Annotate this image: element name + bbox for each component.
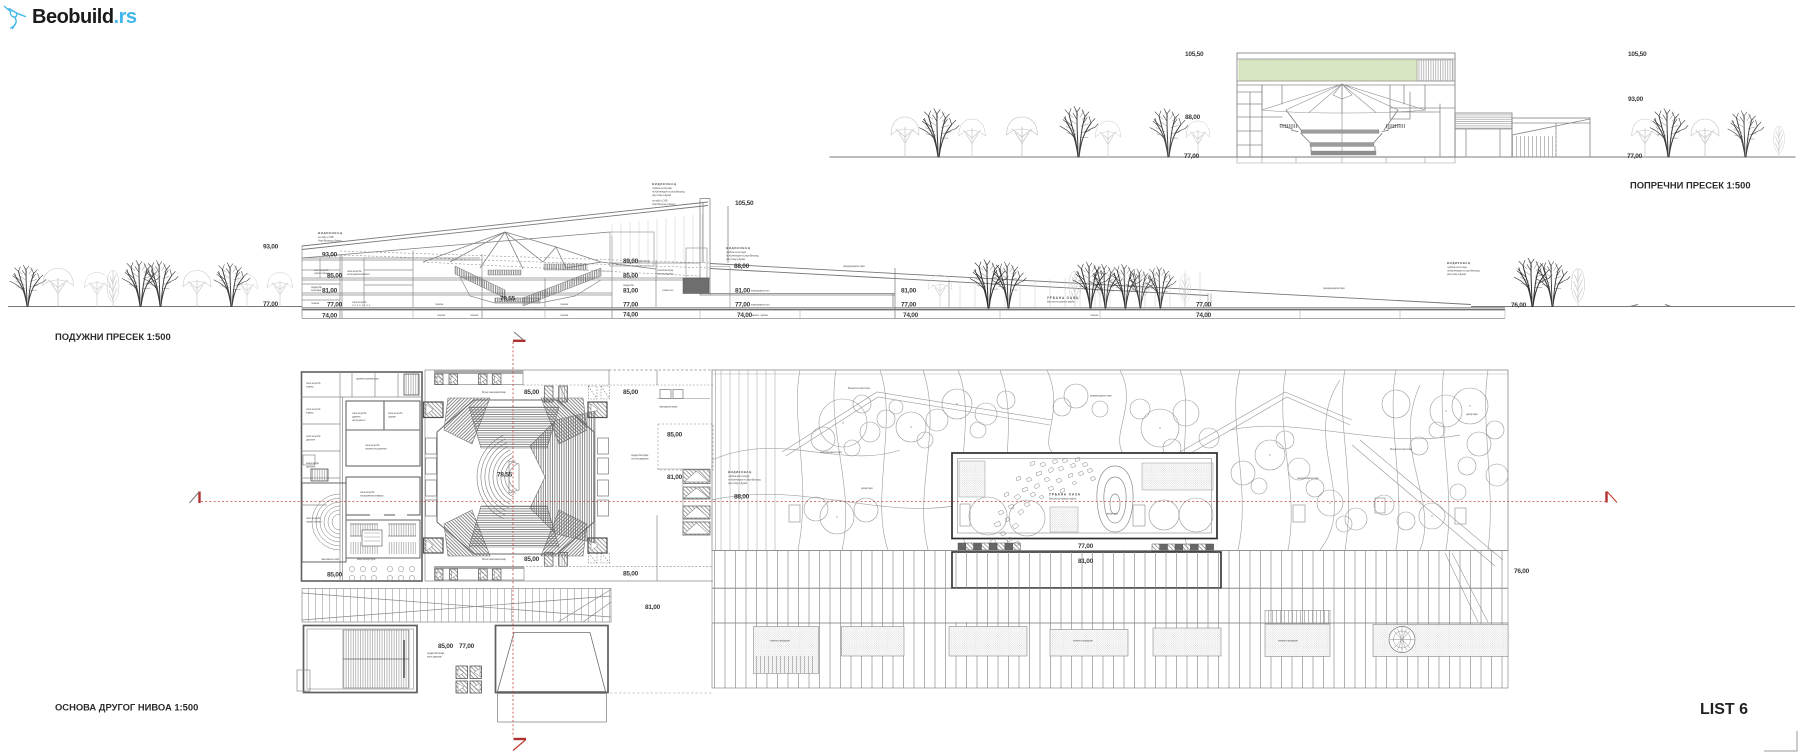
svg-text:зелене платформе: зелене платформе [1278,639,1298,643]
svg-text:85,00: 85,00 [524,389,540,396]
svg-text:78,55: 78,55 [497,472,513,479]
svg-text:административни део: административни део [356,378,379,381]
svg-text:велика дворана: велика дворана [657,273,674,276]
svg-text:УРБАНА ОАЗА: УРБАНА ОАЗА [1047,296,1079,300]
svg-text:музичара: музичара [311,289,322,292]
svg-text:сала за пробе: сала за пробе [365,443,380,447]
svg-text:сала за пробе: сала за пробе [306,381,321,385]
svg-text:ВИДИКОВАЦ: ВИДИКОВАЦ [652,182,677,186]
svg-text:комерцијални хол: комерцијални хол [751,289,770,293]
svg-text:Beobuild.rs: Beobuild.rs [32,6,137,28]
svg-text:оркестар: оркестар [352,304,371,307]
svg-text:Нови Београд и Земун: Нови Београд и Земун [652,202,676,206]
svg-text:77,00: 77,00 [623,302,639,309]
svg-text:77,00: 77,00 [1078,543,1094,550]
svg-text:источна дворана: источна дворана [631,458,649,461]
svg-text:93,00: 93,00 [322,252,338,259]
svg-text:резиденцијални парк: резиденцијални парк [1090,394,1113,398]
svg-text:74,00: 74,00 [903,312,919,319]
svg-text:81,00: 81,00 [623,288,639,295]
svg-text:кафе фискултура: кафе фискултура [357,557,376,561]
svg-text:Башта ресторана и кафеа: Башта ресторана и кафеа [1049,497,1077,501]
svg-text:Бициклистичка стаза: Бициклистичка стаза [848,386,870,390]
svg-text:резиденцијални парк: резиденцијални парк [1323,286,1346,290]
svg-text:канцеларија: канцеларија [306,461,319,465]
svg-text:гудачки: гудачки [388,416,396,419]
svg-text:81,00: 81,00 [645,604,661,611]
svg-text:на Калемегдан и стари Београд: на Калемегдан и стари Београд [652,190,685,194]
svg-text:УРБАНА ОАЗА: УРБАНА ОАЗА [1049,493,1081,497]
svg-text:техника: техника [437,314,446,317]
svg-text:85,00: 85,00 [524,556,540,563]
svg-text:клавир: клавир [306,412,314,415]
svg-text:гардеробе: гардеробе [623,283,634,287]
svg-text:диригент: диригент [306,439,316,442]
svg-text:ПОПРЕЧНИ ПРЕСЕК 1:500: ПОПРЕЧНИ ПРЕСЕК 1:500 [1630,180,1751,191]
svg-text:на тврђ. и СИВ: на тврђ. и СИВ [652,199,668,203]
svg-text:74,00: 74,00 [623,312,639,319]
svg-text:на Калемегдан и стари Београд: на Калемегдан и стари Београд [728,478,761,482]
svg-text:сала за пробе: сала за пробе [352,411,367,415]
svg-text:дечији парк: дечији парк [1466,412,1479,416]
svg-text:85,00: 85,00 [667,432,683,439]
svg-text:Бочне панорама фоаје: Бочне панорама фоаје [482,390,506,394]
svg-text:трибине за погледе: трибине за погледе [726,250,747,254]
svg-text:Нови Београд и Земун: Нови Београд и Земун [318,239,342,243]
svg-text:ОСНОВА ДРУГОГ НИВОА 1:500: ОСНОВА ДРУГОГ НИВОА 1:500 [55,702,198,713]
svg-text:76,00: 76,00 [1514,568,1530,575]
svg-text:77,00: 77,00 [735,302,751,309]
svg-text:трибине (за погледе): трибине (за погледе) [728,474,750,478]
svg-text:панорамски кафе: панорамски кафе [659,405,678,409]
svg-text:реку Саву и Дунав: реку Саву и Дунав [726,257,746,261]
svg-text:74,00: 74,00 [1196,312,1212,319]
svg-text:85,00: 85,00 [438,643,454,650]
svg-text:Бициклистичка стаза: Бициклистичка стаза [1390,447,1412,451]
svg-text:77,00: 77,00 [459,643,475,650]
svg-text:93,00: 93,00 [1628,96,1644,103]
svg-text:81,00: 81,00 [901,288,917,295]
svg-text:81,00: 81,00 [667,474,683,481]
svg-text:панорамски лифт: панорамски лифт [321,557,340,561]
svg-text:на тврђ. и СИВ: на тврђ. и СИВ [318,235,334,239]
svg-text:техника: техника [435,303,444,306]
svg-text:гардероба фоаје: гардероба фоаје [427,651,445,655]
svg-text:сала за пробе: сала за пробе [306,407,321,411]
svg-text:техника: техника [470,314,479,317]
svg-text:инструменти: инструменти [352,419,366,422]
svg-text:74,00: 74,00 [322,313,338,320]
svg-text:зелене платформе: зелене платформе [770,639,790,643]
svg-text:88,00: 88,00 [734,263,750,270]
svg-text:хорско певање: хорско певање [314,272,330,275]
svg-text:Башта ресторана и кафеа: Башта ресторана и кафеа [1047,300,1075,304]
svg-text:комерцијални хол: комерцијални хол [751,303,770,307]
svg-text:ВИДИКОВАЦ: ВИДИКОВАЦ [728,470,752,474]
svg-text:81,00: 81,00 [1078,558,1094,565]
svg-text:трибине за скупове: трибине за скупове [652,186,672,190]
svg-text:инструмената клавира: инструмената клавира [360,495,384,498]
svg-text:ВИДИКОВАЦ: ВИДИКОВАЦ [318,231,343,235]
svg-text:77,00: 77,00 [263,301,279,308]
svg-text:гардероба фоаје: гардероба фоаје [631,453,649,457]
svg-text:реку Саву и Дунав: реку Саву и Дунав [728,481,748,485]
svg-text:трибине за погледе: трибине за погледе [1447,265,1468,269]
svg-text:улазни хол: улазни хол [662,289,674,292]
svg-text:сала за пробе: сала за пробе [306,434,321,438]
svg-text:резиденцијални парк: резиденцијални парк [1297,476,1320,480]
svg-text:резиденцијални парк: резиденцијални парк [843,264,866,268]
svg-text:78,55: 78,55 [500,296,516,303]
svg-text:85,00: 85,00 [327,572,343,579]
svg-text:зелене платформе: зелене платформе [1073,639,1093,643]
svg-text:дечији парк: дечији парк [1106,512,1119,516]
svg-text:Бочне панорама фоаје: Бочне панорама фоаје [482,557,506,561]
svg-text:диригент: диригент [306,466,316,469]
svg-text:77,00: 77,00 [901,302,917,309]
svg-text:77,00: 77,00 [327,302,343,309]
svg-text:мале дворане: мале дворане [427,656,442,659]
svg-text:дечији парк: дечији парк [861,486,874,490]
svg-text:77,00: 77,00 [1184,153,1200,160]
svg-text:сала за пробе: сала за пробе [306,516,321,520]
svg-text:ВИДИКОВАЦ: ВИДИКОВАЦ [726,246,751,250]
svg-text:хорско певање: хорско певање [306,521,322,524]
svg-text:читалачки атриј: читалачки атриј [657,268,674,272]
svg-text:88,00: 88,00 [734,494,750,501]
svg-text:лимени инструменти: лимени инструменти [365,448,387,451]
svg-text:ВИДИКОВАЦ: ВИДИКОВАЦ [1447,261,1471,265]
svg-text:техника: техника [560,314,569,317]
svg-text:реку Саву и Дунав: реку Саву и Дунав [652,193,672,197]
svg-text:76,00: 76,00 [1511,302,1527,309]
svg-text:сала за пробе: сала за пробе [360,490,375,494]
svg-text:на Калемегдан и стари Београд: на Калемегдан и стари Београд [1447,269,1480,273]
svg-text:техника: техника [311,302,320,305]
svg-text:93,00: 93,00 [263,244,279,251]
svg-text:85,00: 85,00 [623,389,639,396]
svg-text:сала за пробе: сала за пробе [388,411,403,415]
svg-text:81,00: 81,00 [735,288,751,295]
svg-text:105,50: 105,50 [735,200,754,207]
svg-text:паркинг - гаража: паркинг - гаража [751,314,768,317]
svg-text:ПОДУЖНИ ПРЕСЕК 1:500: ПОДУЖНИ ПРЕСЕК 1:500 [55,331,171,342]
svg-text:техника: техника [560,303,569,306]
svg-text:77,00: 77,00 [1196,302,1212,309]
svg-text:81,00: 81,00 [322,288,338,295]
svg-text:105,50: 105,50 [1185,51,1204,58]
svg-text:85,00: 85,00 [623,273,639,280]
svg-text:LIST 6: LIST 6 [1700,701,1748,718]
svg-text:техника: техника [1090,314,1099,317]
svg-text:77,00: 77,00 [1627,153,1643,160]
svg-text:клавир: клавир [306,386,314,389]
svg-text:резиденцијални парк: резиденцијални парк [820,450,843,454]
svg-text:88,00: 88,00 [1185,114,1201,121]
svg-text:реку Саву и Дунав: реку Саву и Дунав [1447,272,1467,276]
svg-text:амфитеатар: амфитеатар [637,259,651,263]
svg-text:105,50: 105,50 [1628,51,1647,58]
svg-text:инструмената великог: инструмената великог [347,273,370,276]
svg-text:85,00: 85,00 [623,571,639,578]
svg-text:на Калемегдан и стари Београд: на Калемегдан и стари Београд [726,254,759,258]
